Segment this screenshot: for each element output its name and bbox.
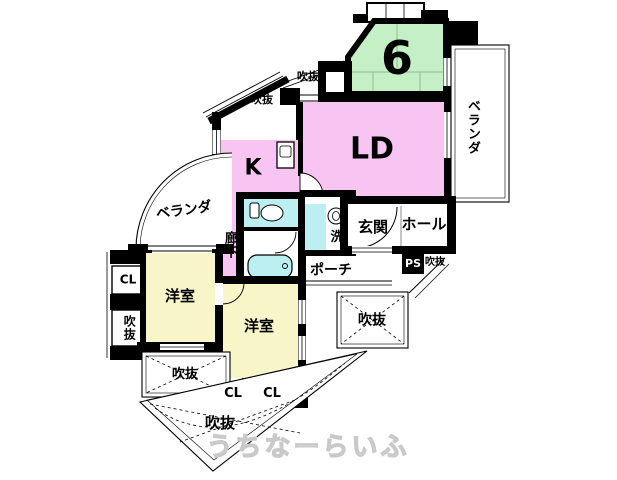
kitchen-sink (280, 146, 291, 157)
void-bottom-left-label: 吹抜 (172, 368, 198, 382)
void-upper-left-label: 吹抜 (251, 94, 273, 106)
veranda-right-label: ベランダ (465, 99, 479, 155)
void-right-label: 吹抜 (358, 314, 386, 329)
void-ps-label: 吹抜 (425, 258, 445, 269)
veranda-left-floor (136, 153, 232, 249)
wall (353, 14, 368, 23)
door-opening (215, 283, 223, 305)
bathtub-icon (248, 255, 292, 278)
washroom-label: 洗 (330, 231, 343, 245)
pillar-shaft (326, 72, 344, 92)
watermark: うちなーらいふ (206, 427, 409, 464)
corridor-label: 廊下 (222, 231, 236, 259)
closet-bottom-1-label: CL (224, 387, 242, 401)
toilet-bowl-icon (261, 205, 283, 221)
entrance-opening (352, 246, 392, 254)
void-left-label: 吹抜 (123, 315, 136, 341)
closet-bottom-2-label: CL (263, 387, 281, 401)
wall (223, 276, 306, 284)
floor-plan: 6 吹抜 吹抜 ベランダ LD K ベランダ 廊下 洗 玄関 ホール ポーチ P… (0, 0, 617, 480)
tatami-size-label: 6 (381, 34, 413, 82)
wall (140, 253, 146, 345)
entrance-label: 玄関 (358, 220, 388, 236)
void-top-label: 吹抜 (297, 71, 319, 83)
western-room-1-label: 洋室 (165, 289, 195, 305)
western-room-2-label: 洋室 (244, 319, 274, 335)
hall-label: ホール (401, 217, 446, 233)
living-dining-label: LD (350, 133, 394, 165)
closet-left-label: CL (120, 274, 136, 287)
pipe-space-label: PS (405, 258, 421, 270)
wall (345, 91, 451, 102)
porch-label: ポーチ (310, 264, 352, 279)
washroom-cyan-floor (305, 204, 326, 250)
kitchen-label: K (244, 156, 261, 179)
wall (298, 284, 306, 378)
toilet-tank-icon (250, 203, 259, 218)
